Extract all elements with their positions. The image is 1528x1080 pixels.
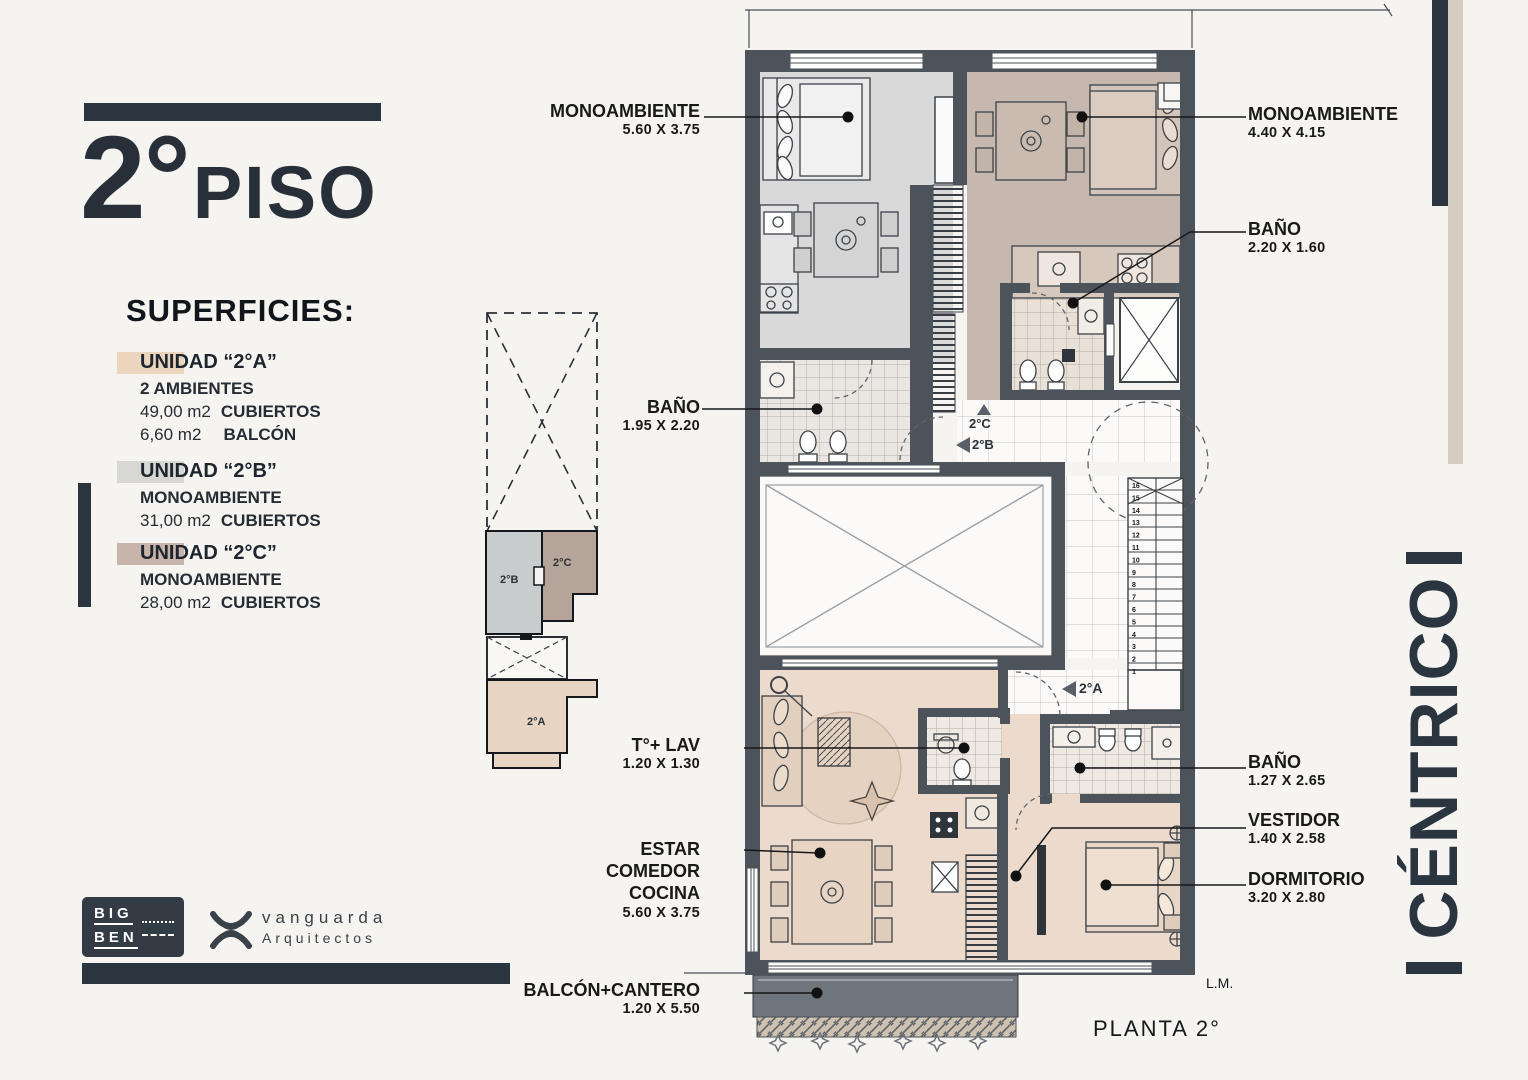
svg-text:16: 16 bbox=[1132, 483, 1140, 490]
room-name: ESTAR bbox=[500, 838, 700, 860]
plan-mark-unit-2b: 2°B bbox=[972, 437, 994, 452]
svg-text:7: 7 bbox=[1132, 595, 1136, 602]
room-dims: 5.60 X 3.75 bbox=[500, 121, 700, 139]
label-bano-2b: BAÑO 1.95 X 2.20 bbox=[500, 397, 700, 435]
balcony bbox=[753, 975, 1018, 1052]
unit-a-area-cubiertos: 49,00 m2CUBIERTOS bbox=[140, 402, 321, 422]
label-balcon-cantero: BALCÓN+CANTERO 1.20 X 5.50 bbox=[500, 980, 700, 1018]
room-name: MONOAMBIENTE bbox=[1248, 104, 1448, 124]
unit-a-area-balcon: 6,60 m2BALCÓN bbox=[140, 425, 296, 445]
unit-a-name: UNIDAD “2°A” bbox=[140, 351, 277, 374]
keyplan-mark-2b: 2°B bbox=[500, 574, 518, 586]
svg-text:4: 4 bbox=[1132, 632, 1136, 639]
room-name: T°+ LAV bbox=[500, 735, 700, 755]
room-name: MONOAMBIENTE bbox=[500, 101, 700, 121]
svg-text:8: 8 bbox=[1132, 582, 1136, 589]
studio-name: vanguarda bbox=[262, 908, 387, 928]
unit-c-name: UNIDAD “2°C” bbox=[140, 542, 277, 565]
plan-caption: PLANTA 2° bbox=[1093, 1016, 1221, 1042]
svg-text:14: 14 bbox=[1132, 508, 1140, 515]
label-monoambiente-2c: MONOAMBIENTE 4.40 X 4.15 bbox=[1248, 104, 1448, 142]
room-dims: 5.60 X 3.75 bbox=[500, 904, 700, 922]
bigben-logo: BIG BEN bbox=[82, 897, 184, 957]
svg-text:5: 5 bbox=[1132, 619, 1136, 626]
room-dims: 2.20 X 1.60 bbox=[1248, 239, 1448, 257]
unit-a-type: 2 AMBIENTES bbox=[140, 379, 254, 399]
plan-mark-unit-2a: 2°A bbox=[1079, 680, 1103, 696]
right-beige-bar bbox=[1448, 0, 1463, 464]
superficies-accent-bar bbox=[78, 483, 91, 607]
svg-text:1: 1 bbox=[1132, 669, 1136, 676]
unit-b-name: UNIDAD “2°B” bbox=[140, 460, 277, 483]
bigben-bottom: BEN bbox=[94, 929, 138, 949]
svg-text:10: 10 bbox=[1132, 557, 1140, 564]
room-name: COCINA bbox=[500, 882, 700, 904]
svg-text:3: 3 bbox=[1132, 644, 1136, 651]
page-title: 2° PISO bbox=[80, 119, 378, 237]
municipal-line-label: L.M. bbox=[1206, 975, 1233, 991]
svg-text:11: 11 bbox=[1132, 545, 1140, 552]
svg-text:9: 9 bbox=[1132, 570, 1136, 577]
unit-c-area-cubiertos: 28,00 m2CUBIERTOS bbox=[140, 593, 321, 613]
svg-text:13: 13 bbox=[1132, 520, 1140, 527]
bigben-pattern bbox=[142, 934, 174, 936]
bigben-top: BIG bbox=[94, 905, 133, 925]
room-name: BALCÓN+CANTERO bbox=[500, 980, 700, 1000]
keyplan-mark-2a: 2°A bbox=[527, 716, 545, 728]
floor-number: 2° bbox=[80, 119, 189, 237]
keyplan-mark-2c: 2°C bbox=[553, 557, 571, 569]
room-dims: 1.20 X 5.50 bbox=[500, 1000, 700, 1018]
key-plan bbox=[486, 313, 597, 768]
svg-text:12: 12 bbox=[1132, 533, 1140, 540]
plan-mark-unit-2c: 2°C bbox=[969, 416, 991, 431]
room-dims: 1.95 X 2.20 bbox=[500, 417, 700, 435]
bigben-pattern bbox=[142, 921, 174, 923]
superficies-heading: SUPERFICIES: bbox=[126, 293, 355, 329]
label-bano-2c: BAÑO 2.20 X 1.60 bbox=[1248, 219, 1448, 257]
svg-text:2: 2 bbox=[1132, 657, 1136, 664]
footer-accent-bar bbox=[82, 963, 510, 984]
room-name: COMEDOR bbox=[500, 860, 700, 882]
unit-b-area-cubiertos: 31,00 m2CUBIERTOS bbox=[140, 511, 321, 531]
unit-c-type: MONOAMBIENTE bbox=[140, 570, 282, 590]
room-name: BAÑO bbox=[1248, 219, 1448, 239]
studio-subtitle: Arquitectos bbox=[262, 930, 376, 946]
project-name-vertical: CÉNTRICO bbox=[1394, 538, 1474, 978]
room-name: BAÑO bbox=[500, 397, 700, 417]
svg-text:6: 6 bbox=[1132, 607, 1136, 614]
vanguarda-logo-icon bbox=[213, 914, 249, 946]
floorplan-page: 16151413121110987654321 bbox=[0, 0, 1528, 1080]
right-dark-bar bbox=[1432, 0, 1448, 206]
label-monoambiente-2b: MONOAMBIENTE 5.60 X 3.75 bbox=[500, 101, 700, 139]
void-patio bbox=[757, 476, 1052, 656]
label-toilette-lav: T°+ LAV 1.20 X 1.30 bbox=[500, 735, 700, 773]
room-dims: 4.40 X 4.15 bbox=[1248, 124, 1448, 142]
room-dims: 1.20 X 1.30 bbox=[500, 755, 700, 773]
svg-text:15: 15 bbox=[1132, 495, 1140, 502]
unit-b-type: MONOAMBIENTE bbox=[140, 488, 282, 508]
floor-word: PISO bbox=[193, 156, 378, 230]
label-estar-comedor-cocina: ESTAR COMEDOR COCINA 5.60 X 3.75 bbox=[500, 838, 700, 922]
